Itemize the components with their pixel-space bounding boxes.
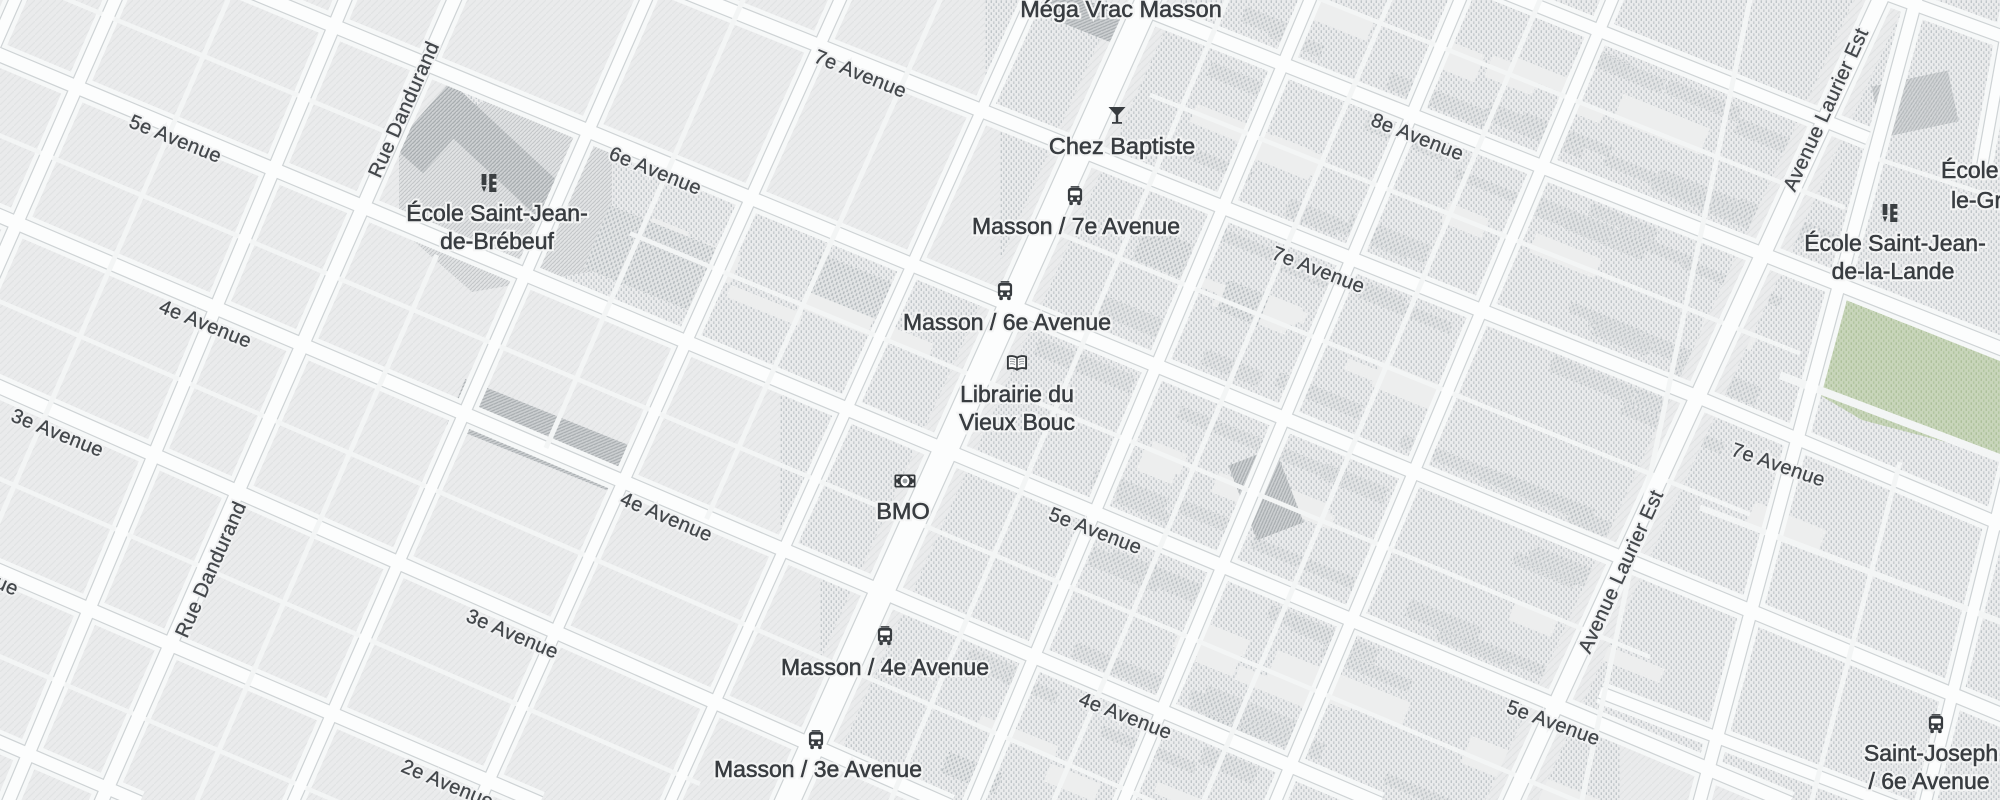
svg-text:BMO: BMO	[876, 498, 930, 524]
svg-text:Saint-Joseph: Saint-Joseph	[1864, 740, 1998, 766]
svg-text:de-Brébeuf: de-Brébeuf	[440, 228, 554, 254]
svg-text:Masson / 4e Avenue: Masson / 4e Avenue	[781, 654, 989, 680]
svg-text:Masson / 6e Avenue: Masson / 6e Avenue	[903, 309, 1111, 335]
svg-text:Vieux Bouc: Vieux Bouc	[959, 409, 1075, 435]
svg-text:École: École	[1941, 157, 1999, 183]
svg-text:Librairie du: Librairie du	[960, 381, 1074, 407]
svg-text:le-Gra: le-Gra	[1951, 187, 2000, 213]
svg-text:Masson / 3e Avenue: Masson / 3e Avenue	[714, 756, 922, 782]
svg-text:Chez Baptiste: Chez Baptiste	[1049, 133, 1195, 159]
svg-text:École Saint-Jean-: École Saint-Jean-	[1804, 230, 1986, 256]
svg-text:de-la-Lande: de-la-Lande	[1832, 258, 1955, 284]
svg-text:Méga Vrac Masson: Méga Vrac Masson	[1020, 0, 1222, 22]
svg-text:École Saint-Jean-: École Saint-Jean-	[406, 200, 588, 226]
svg-text:Masson / 7e Avenue: Masson / 7e Avenue	[972, 213, 1180, 239]
svg-text:/ 6e Avenue: / 6e Avenue	[1868, 768, 1989, 794]
